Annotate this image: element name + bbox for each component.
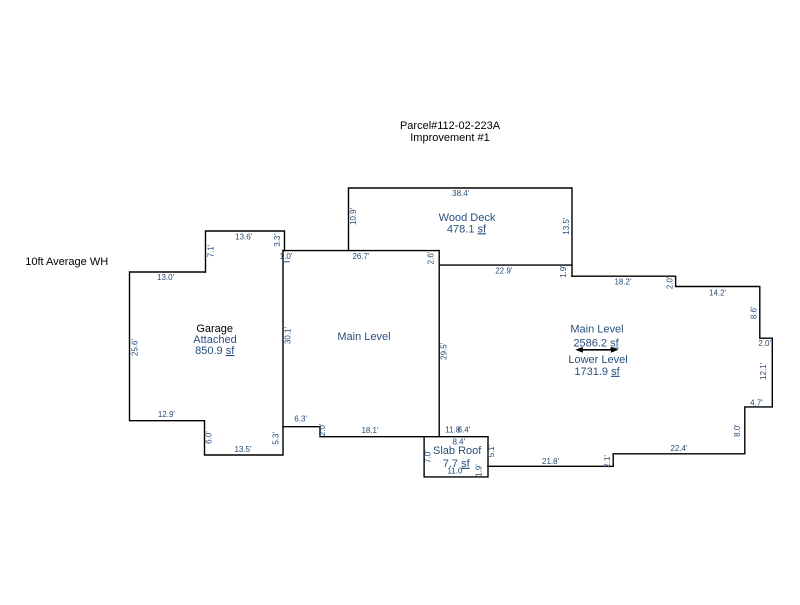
svg-text:26.7': 26.7' <box>352 252 370 261</box>
svg-text:Main Level: Main Level <box>337 331 390 343</box>
svg-text:13.5': 13.5' <box>562 217 571 235</box>
svg-text:7.0': 7.0' <box>424 450 433 463</box>
svg-text:18.2': 18.2' <box>614 277 632 286</box>
svg-text:1731.9 sf: 1731.9 sf <box>574 366 620 378</box>
svg-text:30.1': 30.1' <box>284 326 293 344</box>
svg-text:6.0': 6.0' <box>204 431 213 444</box>
svg-text:2.6': 2.6' <box>427 251 436 264</box>
svg-text:5.1': 5.1' <box>487 444 496 457</box>
svg-text:Wood Deck: Wood Deck <box>439 212 496 224</box>
svg-text:1.0': 1.0' <box>280 252 293 261</box>
svg-text:8.0': 8.0' <box>733 424 742 437</box>
svg-text:Parcel#112-02-223A: Parcel#112-02-223A <box>400 120 501 132</box>
svg-text:14.2': 14.2' <box>709 289 727 298</box>
svg-text:10.9': 10.9' <box>349 207 358 225</box>
svg-text:12.9': 12.9' <box>158 410 176 419</box>
svg-text:2.0': 2.0' <box>666 276 675 289</box>
svg-text:1.9': 1.9' <box>474 464 483 477</box>
svg-text:18.1': 18.1' <box>361 426 379 435</box>
svg-text:2.0': 2.0' <box>318 423 327 436</box>
svg-text:4.7': 4.7' <box>750 398 763 407</box>
svg-text:11.0': 11.0' <box>447 466 464 475</box>
svg-text:21.8': 21.8' <box>542 457 560 466</box>
svg-text:38.4': 38.4' <box>452 189 470 198</box>
svg-text:Main Level: Main Level <box>570 324 623 336</box>
svg-text:7.1': 7.1' <box>206 244 215 257</box>
svg-text:13.5': 13.5' <box>234 445 252 454</box>
svg-text:22.4': 22.4' <box>670 444 688 453</box>
svg-text:6.4': 6.4' <box>458 425 471 434</box>
svg-text:850.9 sf: 850.9 sf <box>195 345 235 357</box>
svg-text:6.3': 6.3' <box>294 414 307 423</box>
svg-text:13.0': 13.0' <box>157 273 175 282</box>
svg-text:25.6': 25.6' <box>131 338 140 356</box>
svg-text:478.1 sf: 478.1 sf <box>447 223 487 235</box>
svg-text:2.0': 2.0' <box>758 339 771 348</box>
svg-text:1.9': 1.9' <box>559 265 568 278</box>
svg-text:22.9': 22.9' <box>495 267 513 276</box>
svg-text:8.6': 8.6' <box>750 306 759 319</box>
svg-text:Improvement #1: Improvement #1 <box>410 132 489 144</box>
svg-text:Lower Level: Lower Level <box>568 354 627 366</box>
svg-text:2.1': 2.1' <box>603 455 612 468</box>
svg-text:29.5': 29.5' <box>440 342 449 360</box>
svg-text:10ft Average WH: 10ft Average WH <box>25 256 108 268</box>
svg-text:3.3': 3.3' <box>273 234 282 247</box>
svg-text:8.4': 8.4' <box>452 438 465 447</box>
svg-text:12.1': 12.1' <box>759 362 768 380</box>
svg-text:5.3': 5.3' <box>271 432 280 445</box>
svg-text:13.6': 13.6' <box>235 233 253 242</box>
